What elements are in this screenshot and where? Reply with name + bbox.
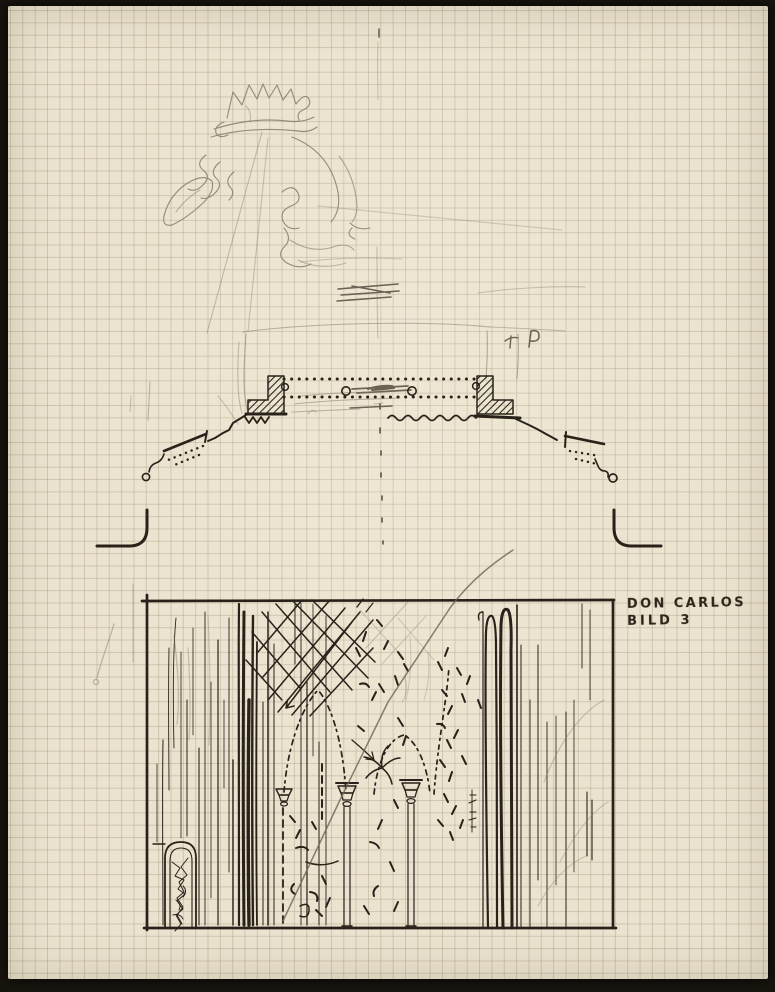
sketch-drawing xyxy=(0,0,775,992)
picture-left-curtains xyxy=(153,603,326,931)
stage-picture-frame xyxy=(142,595,616,930)
scanned-sketch-page: DON CARLOS BILD 3 xyxy=(0,0,775,992)
label-line-1: DON CARLOS xyxy=(627,594,757,613)
stage-plan-ink xyxy=(97,376,661,546)
crown-pencil-sketch xyxy=(164,84,562,333)
label-line-2: BILD 3 xyxy=(627,611,757,630)
picture-right-curtains xyxy=(479,604,593,928)
drawing-label: DON CARLOS BILD 3 xyxy=(627,594,757,630)
plan-pencil-structure xyxy=(130,258,585,424)
